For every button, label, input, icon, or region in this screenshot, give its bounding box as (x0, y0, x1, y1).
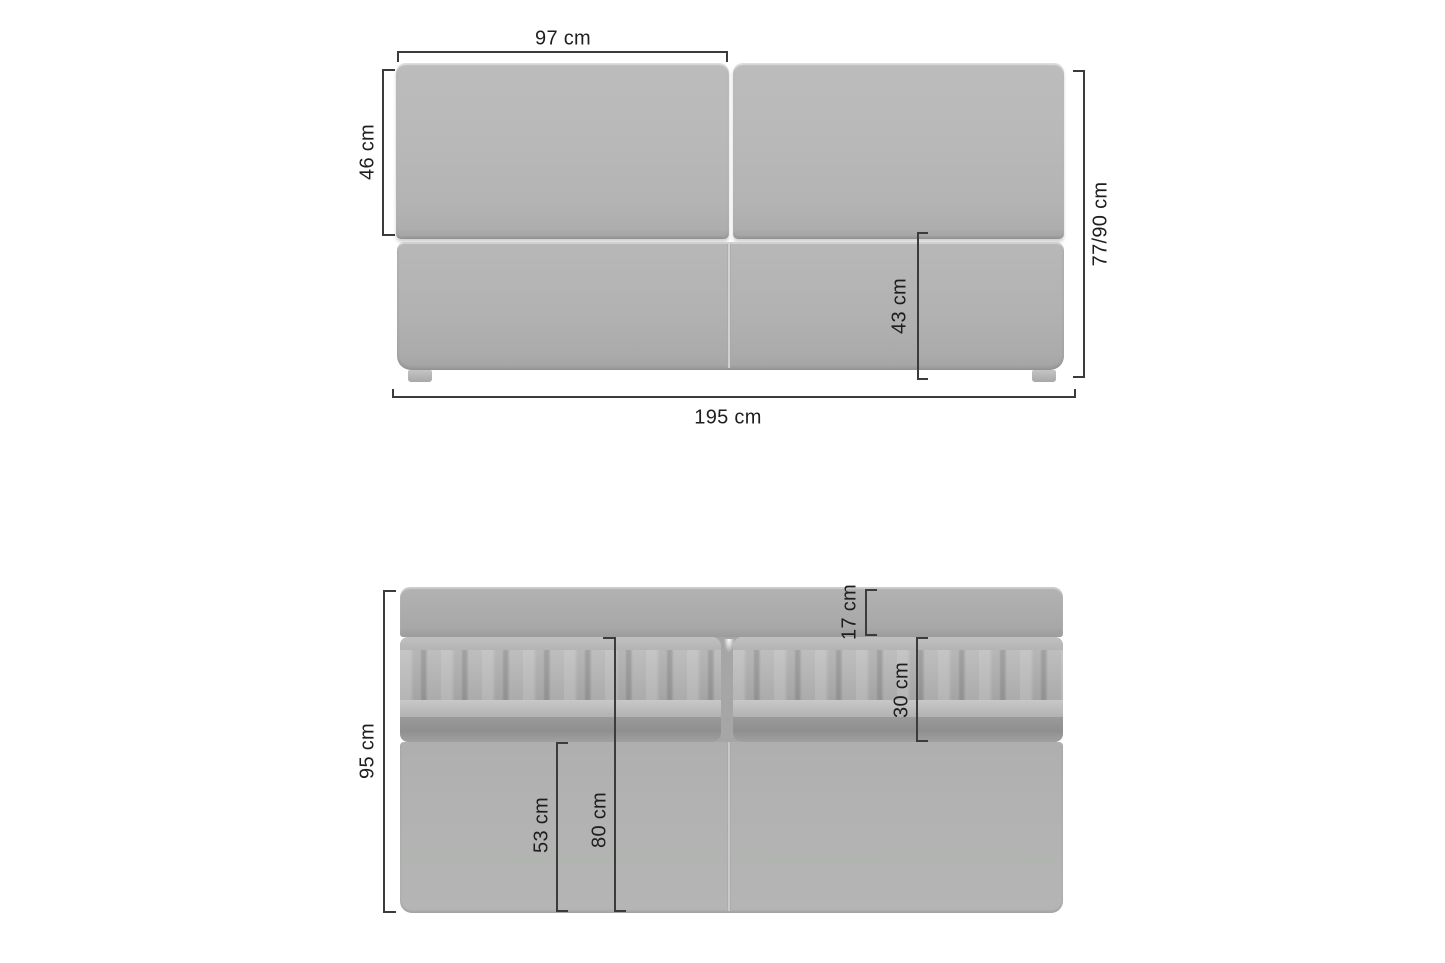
dimension-tick (397, 51, 399, 62)
dimension-line (392, 396, 1076, 398)
dimension-line (397, 51, 728, 53)
dimension-label: 46 cm (357, 124, 380, 180)
top-seat-center-seam (727, 742, 731, 911)
dimension-tick (556, 742, 568, 744)
dimension-label: 43 cm (889, 278, 912, 334)
dimension-line (916, 637, 918, 742)
dimension-tick (1073, 70, 1085, 72)
dimension-tick (383, 590, 396, 592)
dimension-label: 95 cm (357, 723, 380, 779)
dimension-tick (382, 234, 395, 236)
dimension-tick (865, 589, 877, 591)
dimension-tick (383, 911, 396, 913)
dimension-tick (917, 232, 928, 234)
front-seat-center-seam (727, 244, 731, 368)
dimension-tick (556, 910, 568, 912)
top-cushion-left (400, 637, 721, 742)
cushion-lip (400, 637, 721, 650)
cushion-shadow-band (733, 717, 1063, 742)
dimension-tick (1073, 376, 1085, 378)
dimension-tick (916, 740, 928, 742)
cushion-front-roll (400, 700, 721, 717)
dimension-tick (392, 389, 394, 398)
dimension-line (917, 232, 919, 380)
dimension-tick (382, 69, 395, 71)
cushion-pleats (400, 650, 721, 700)
dimension-label: 77/90 cm (1090, 182, 1113, 267)
dimension-label: 97 cm (535, 28, 591, 51)
dimension-label: 17 cm (839, 584, 862, 640)
cushion-lip (733, 637, 1063, 650)
front-foot-right (1032, 370, 1056, 382)
front-back-cushion-right (733, 63, 1064, 239)
dimension-tick (916, 637, 928, 639)
dimension-line (382, 69, 384, 236)
front-back-cushion-left (396, 63, 729, 239)
dimension-line (383, 590, 385, 913)
dimension-line (865, 589, 867, 636)
dimension-diagram-page: { "colors": { "background": "#ffffff", "… (0, 0, 1445, 963)
top-backrest-band (400, 587, 1063, 637)
dimension-label: 30 cm (891, 662, 914, 718)
cushion-shadow-band (400, 717, 721, 742)
dimension-tick (917, 378, 928, 380)
front-foot-left (408, 370, 432, 382)
top-cushion-gap-highlight (724, 639, 734, 652)
dimension-line (556, 742, 558, 912)
dimension-line (1083, 70, 1085, 378)
top-seat-area (400, 742, 1063, 913)
dimension-tick (603, 637, 615, 639)
dimension-label: 195 cm (694, 407, 761, 430)
dimension-tick (865, 634, 877, 636)
dimension-tick (614, 910, 626, 912)
dimension-line (614, 637, 616, 912)
dimension-label: 80 cm (589, 792, 612, 848)
dimension-label: 53 cm (531, 797, 554, 853)
dimension-tick (1074, 389, 1076, 398)
dimension-tick (726, 51, 728, 62)
